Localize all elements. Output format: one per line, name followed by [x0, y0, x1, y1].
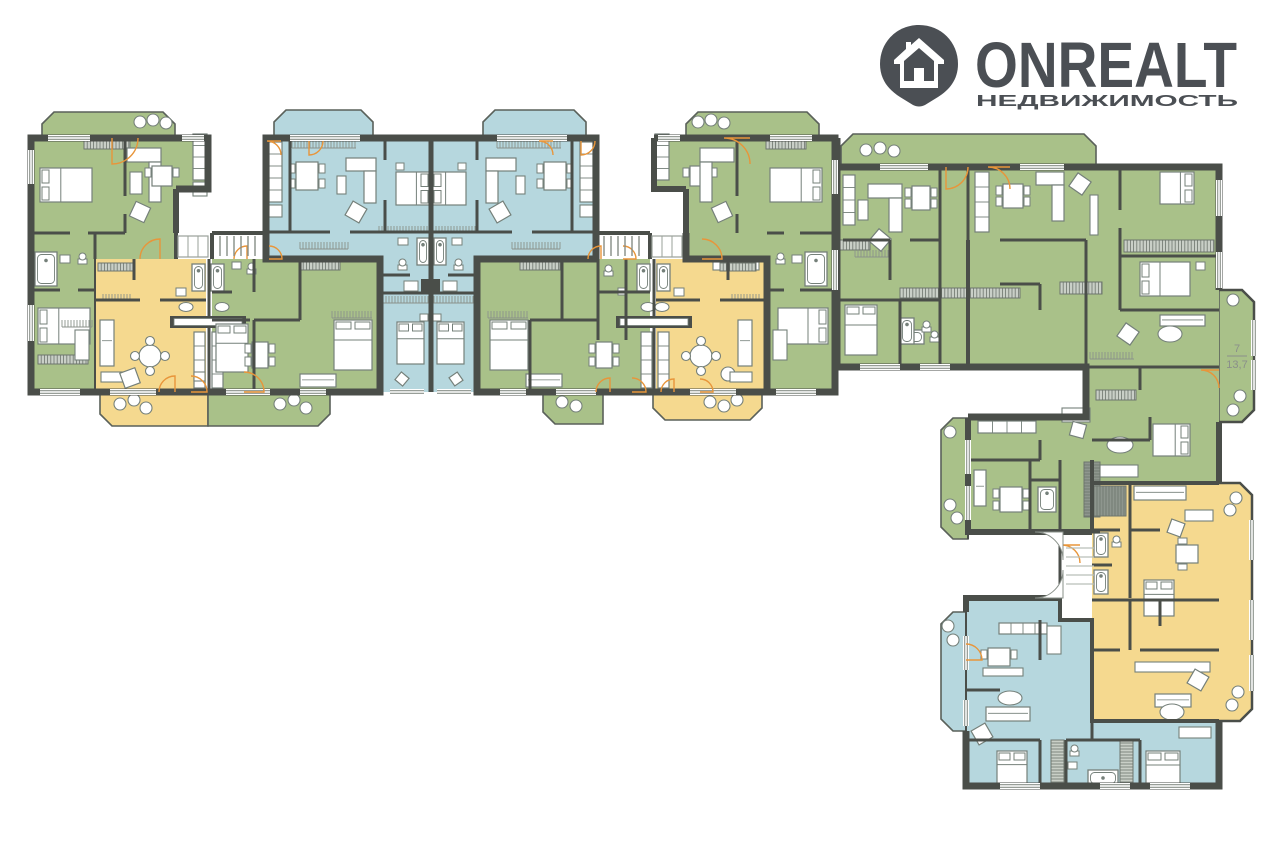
svg-text:13,7: 13,7	[1226, 359, 1247, 371]
svg-text:ONREALT: ONREALT	[975, 29, 1237, 101]
svg-text:НЕДВИЖИМОСТЬ: НЕДВИЖИМОСТЬ	[976, 93, 1238, 110]
svg-text:7: 7	[1234, 343, 1240, 355]
